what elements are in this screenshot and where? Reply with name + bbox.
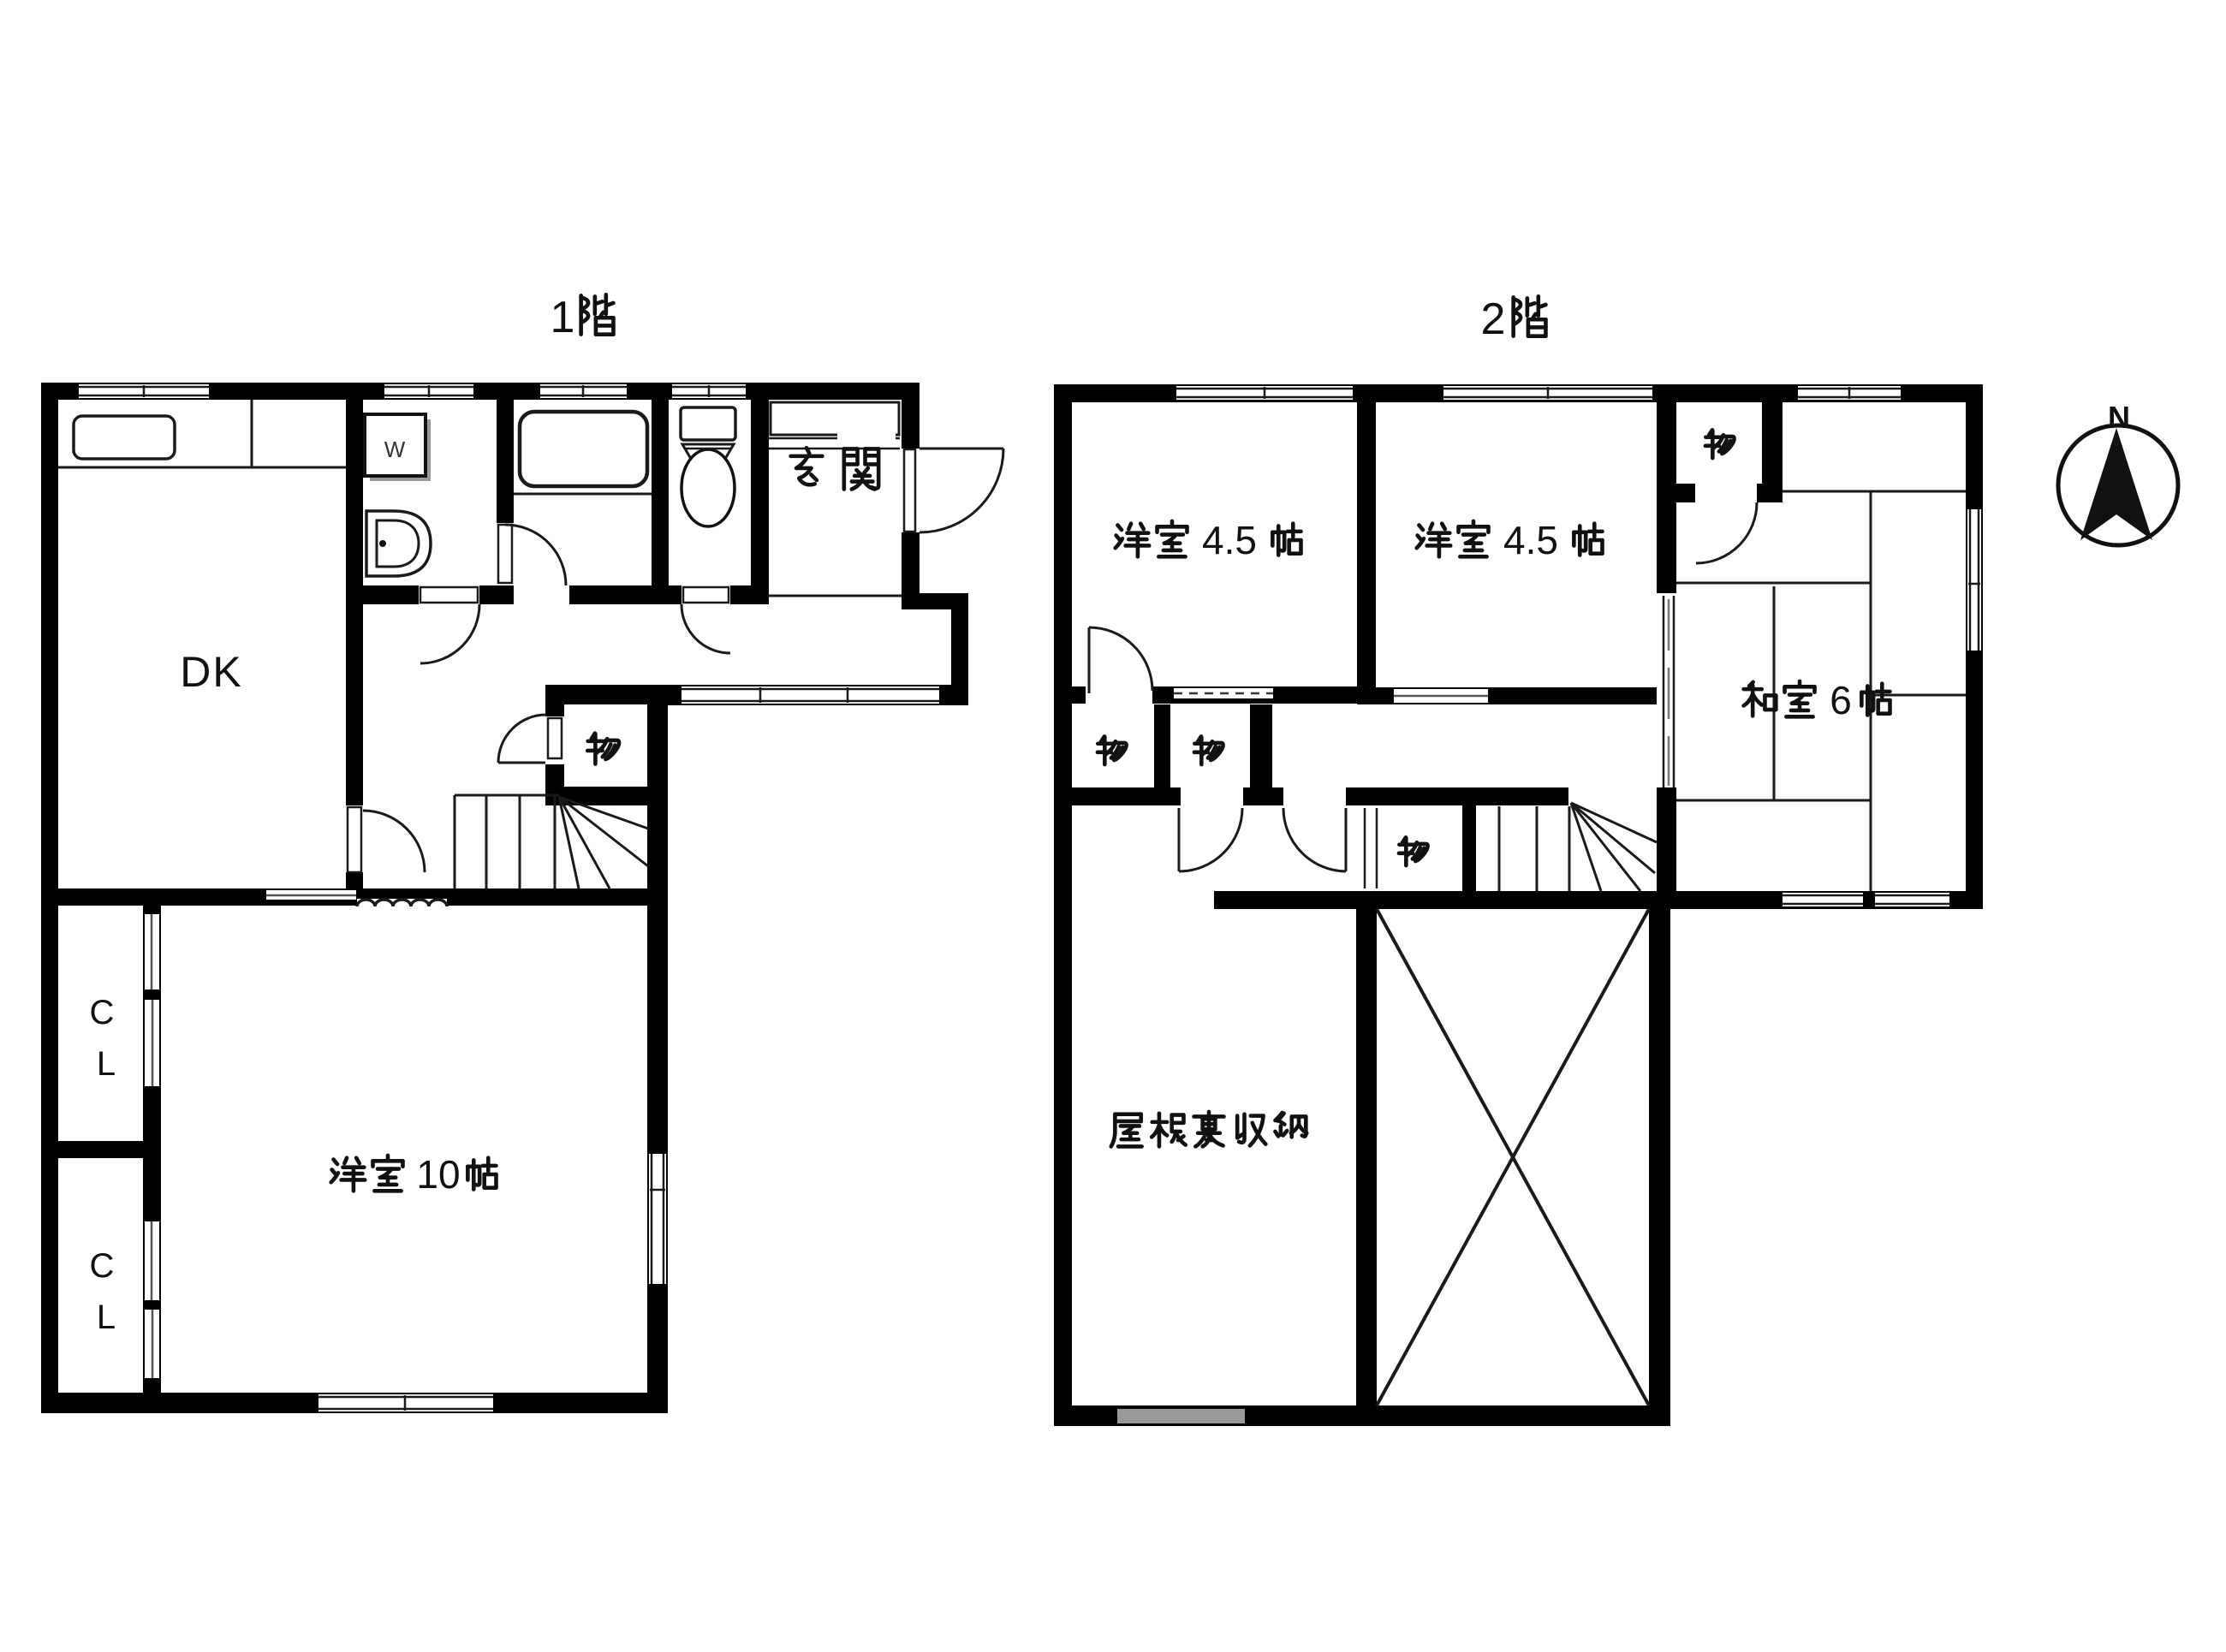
svg-text:W: W	[384, 437, 406, 462]
svg-text:DK: DK	[180, 648, 242, 696]
svg-text:4.5: 4.5	[1503, 518, 1558, 562]
svg-text:1: 1	[551, 293, 575, 342]
svg-text:2: 2	[1481, 294, 1506, 344]
svg-text:6: 6	[1830, 678, 1852, 722]
svg-text:C: C	[90, 994, 115, 1031]
svg-text:C: C	[90, 1247, 115, 1285]
svg-text:4.5: 4.5	[1202, 518, 1257, 562]
svg-text:L: L	[97, 1298, 116, 1336]
svg-text:N: N	[2108, 400, 2130, 435]
svg-text:10: 10	[416, 1152, 460, 1197]
svg-text:L: L	[97, 1045, 116, 1083]
